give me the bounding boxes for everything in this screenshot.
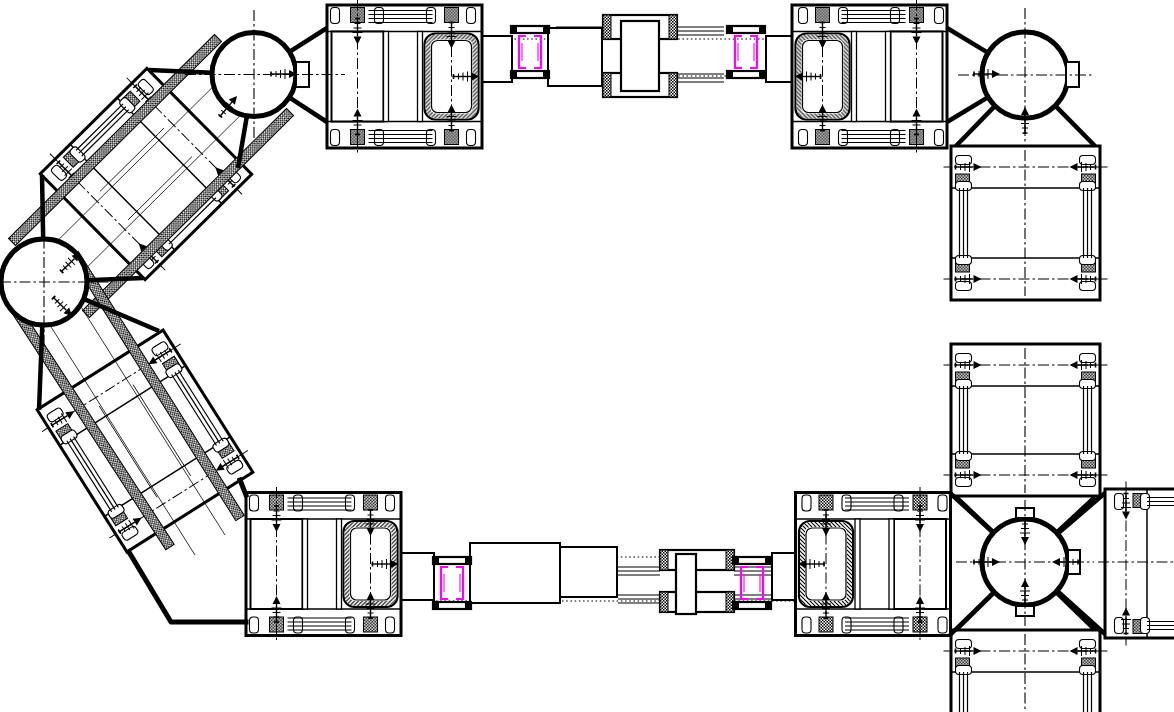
center-coupling-top-band — [603, 15, 677, 97]
sash-unit-top-right — [792, 0, 947, 154]
glass-pane-lines — [734, 567, 772, 575]
gasket-joint-top-right — [727, 26, 765, 78]
sash-unit-bottom-right — [796, 487, 951, 641]
glass-pane-lines — [677, 27, 724, 35]
gasket-joint-bottom-right — [733, 557, 771, 609]
sash-unit-top-left — [327, 0, 482, 154]
fixed-unit-bottom-right-side — [1105, 482, 1174, 646]
gasket-joint-top-left — [511, 26, 549, 78]
center-coupling-bottom-band — [660, 550, 734, 614]
cad-drawing-page — [0, 0, 1174, 712]
glass-pane-lines — [677, 74, 724, 82]
sight-dotted-lines — [436, 39, 800, 601]
cad-drawing-canvas — [0, 0, 1174, 712]
sash-unit-bottom-left — [246, 487, 401, 641]
glass-pane-lines — [618, 595, 660, 603]
gasket-joint-bottom-left — [433, 557, 471, 609]
glass-pane-lines — [618, 567, 660, 575]
corner-post-top-right — [947, 8, 1095, 146]
